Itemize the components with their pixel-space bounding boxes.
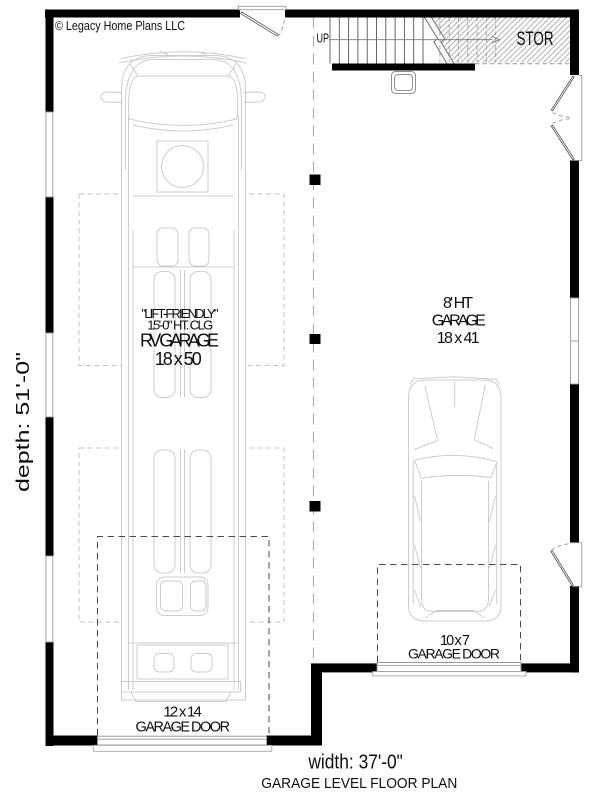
svg-text:12 x 14: 12 x 14 bbox=[163, 704, 202, 721]
svg-text:GARAGE LEVEL FLOOR PLAN: GARAGE LEVEL FLOOR PLAN bbox=[261, 775, 457, 792]
svg-text:STOR: STOR bbox=[517, 29, 554, 50]
svg-text:RV GARAGE: RV GARAGE bbox=[140, 331, 219, 351]
svg-text:GARAGE DOOR: GARAGE DOOR bbox=[136, 720, 230, 736]
svg-text:depth: 51'-0": depth: 51'-0" bbox=[13, 352, 33, 492]
svg-text:GARAGE DOOR: GARAGE DOOR bbox=[408, 646, 500, 662]
svg-text:UP: UP bbox=[317, 32, 330, 46]
svg-text:© Legacy Home Plans LLC: © Legacy Home Plans LLC bbox=[55, 18, 185, 33]
svg-text:8' HT: 8' HT bbox=[443, 295, 473, 312]
svg-text:18 x 41: 18 x 41 bbox=[437, 330, 480, 347]
svg-text:18 x 50: 18 x 50 bbox=[155, 349, 202, 369]
svg-text:GARAGE: GARAGE bbox=[432, 313, 486, 330]
svg-text:width: 37'-0": width: 37'-0" bbox=[307, 752, 402, 774]
